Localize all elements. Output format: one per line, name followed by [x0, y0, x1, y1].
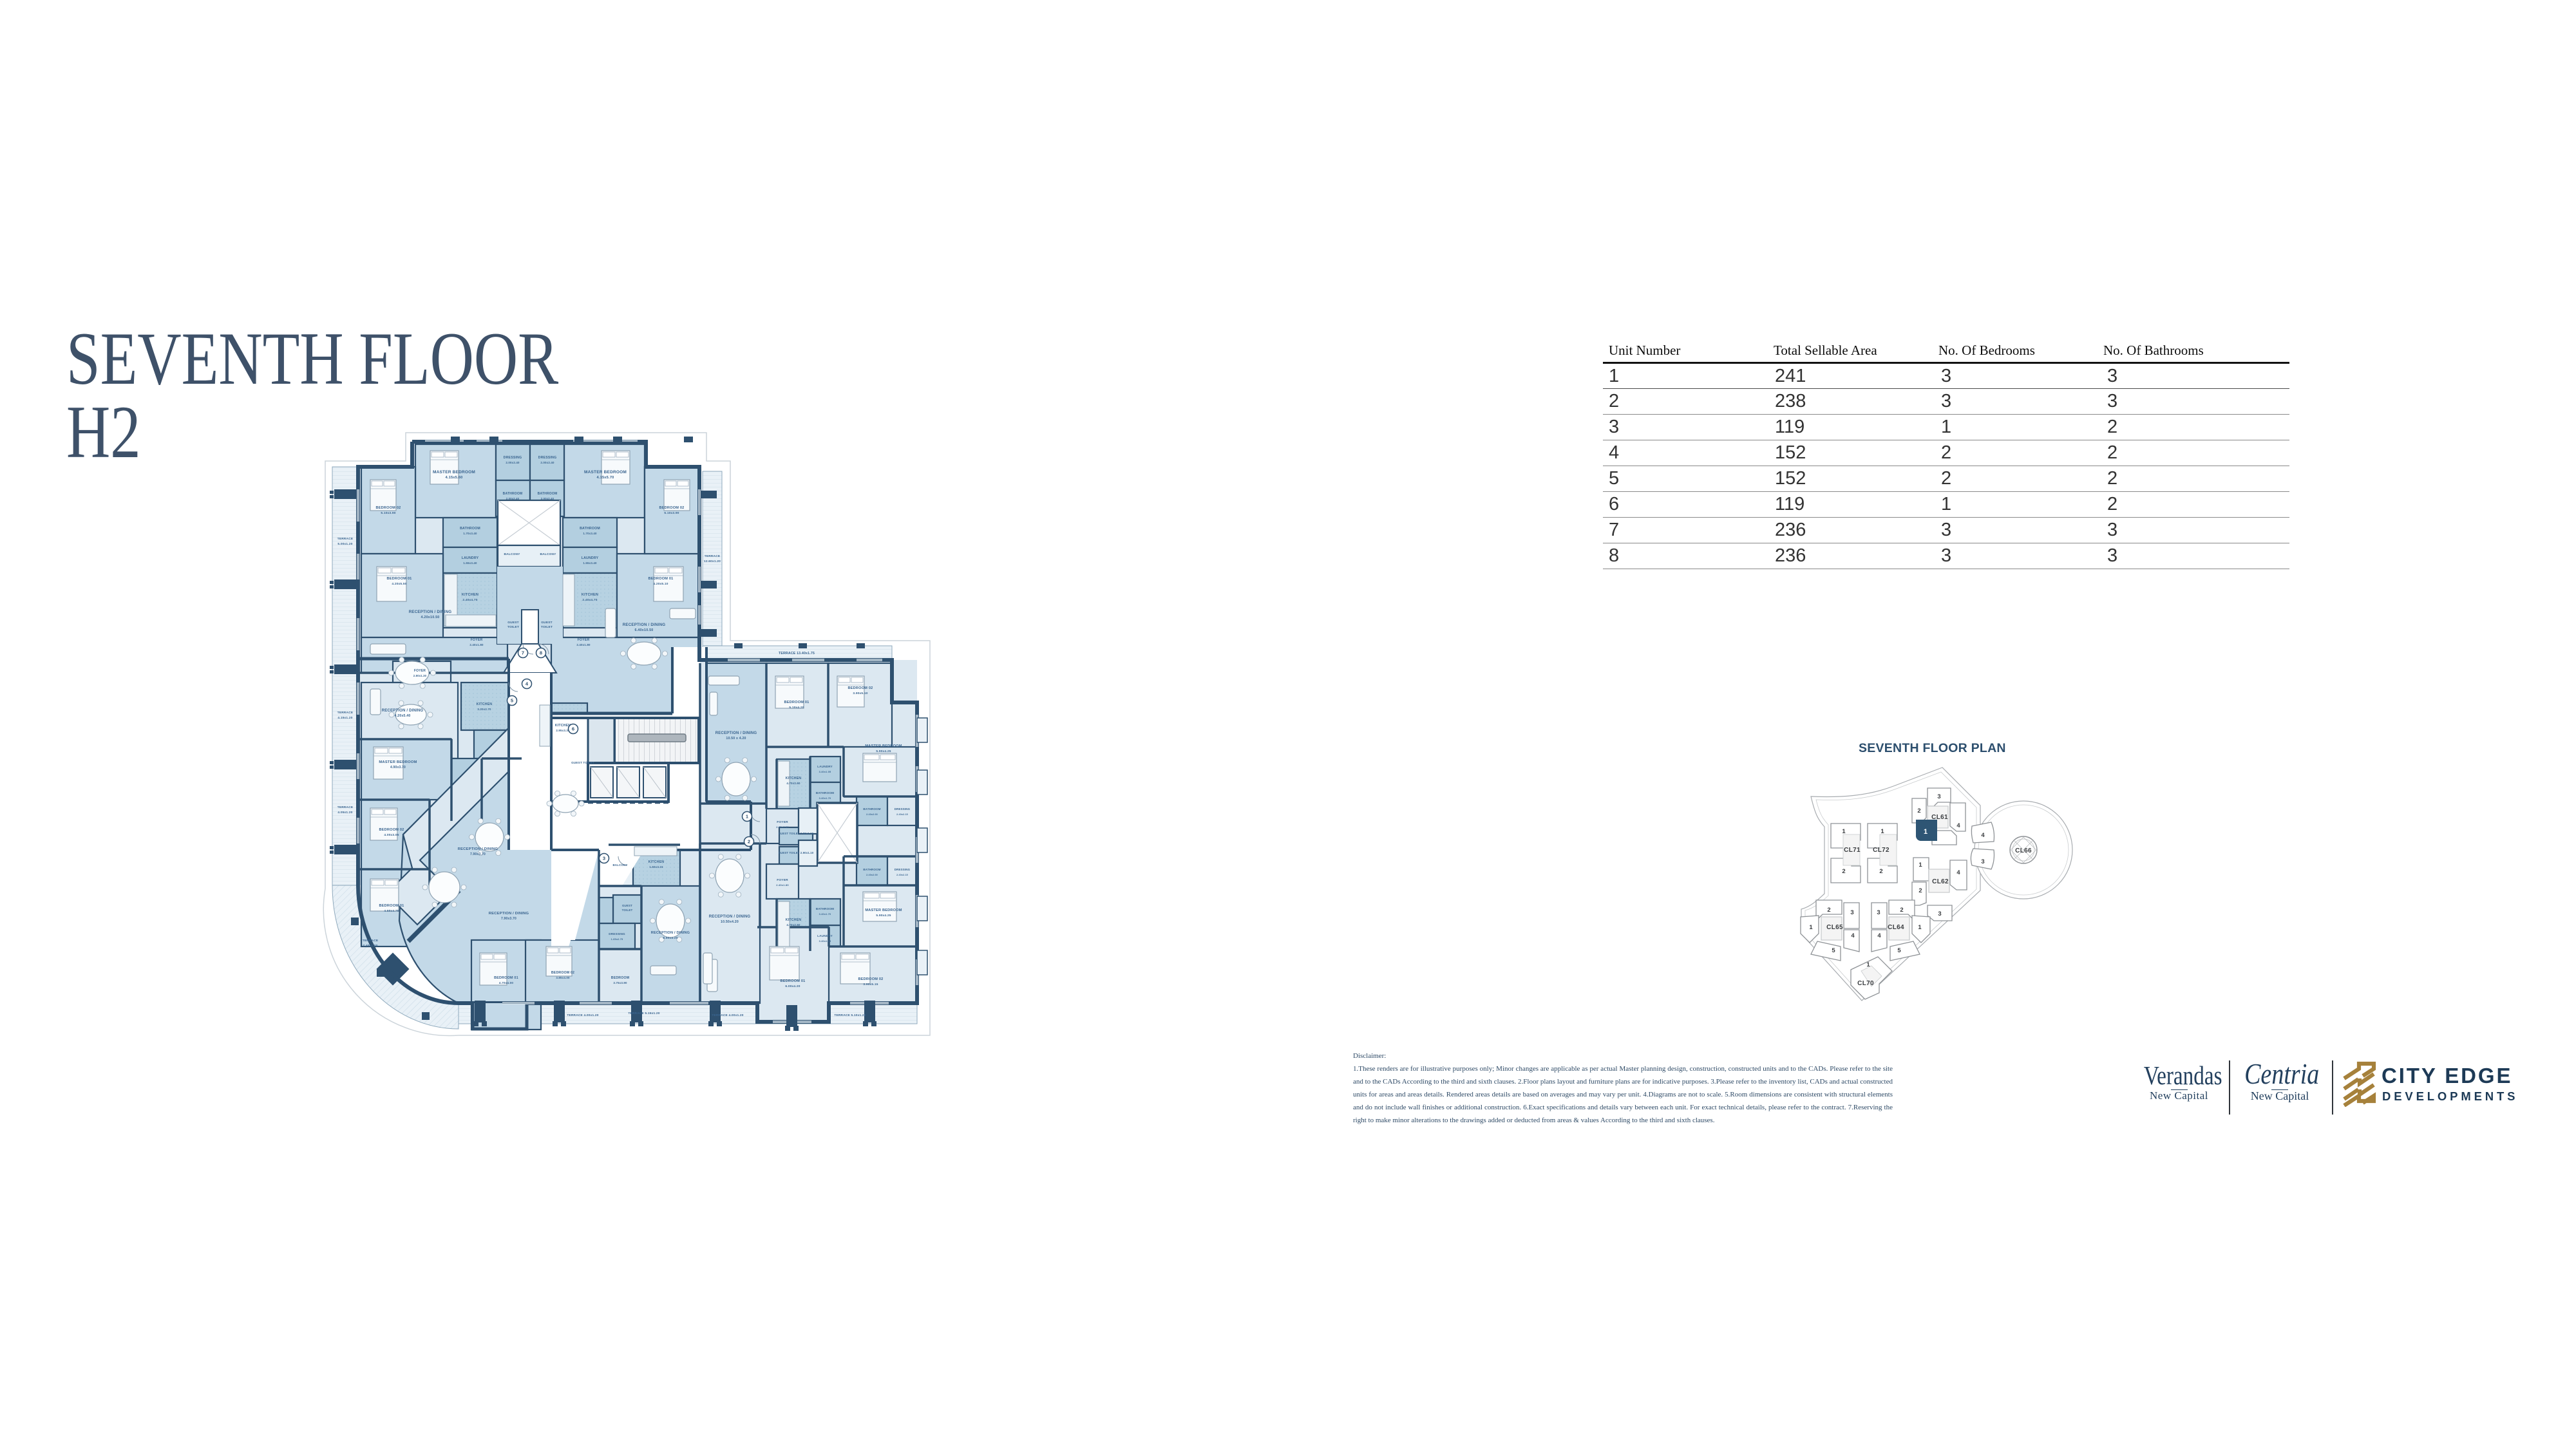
svg-text:3.75x3.90: 3.75x3.90: [613, 981, 627, 984]
svg-text:1.55x3.40: 1.55x3.40: [463, 561, 477, 565]
svg-text:BALCONY: BALCONY: [504, 552, 520, 556]
svg-text:CL66: CL66: [2015, 847, 2032, 854]
svg-text:3: 3: [1877, 909, 1880, 916]
svg-text:3: 3: [1938, 910, 1941, 918]
svg-text:BEDROOM: BEDROOM: [611, 976, 630, 980]
svg-text:LAUNDRY: LAUNDRY: [582, 556, 599, 560]
svg-text:2.40x2.15: 2.40x2.15: [896, 874, 908, 876]
svg-text:5: 5: [1832, 947, 1835, 954]
svg-text:DRESSING: DRESSING: [504, 456, 522, 460]
svg-text:2.00x2.40: 2.00x2.40: [506, 497, 520, 500]
svg-text:KITCHEN: KITCHEN: [786, 777, 802, 780]
svg-text:3.40x1.70: 3.40x1.70: [819, 797, 831, 800]
svg-text:4.70x2.60: 4.70x2.60: [786, 923, 800, 927]
svg-text:FOYER: FOYER: [471, 638, 483, 642]
svg-text:2.40x2.15: 2.40x2.15: [896, 813, 908, 816]
svg-text:DRESSING: DRESSING: [895, 868, 911, 871]
svg-text:FOYER: FOYER: [578, 638, 590, 642]
svg-text:1: 1: [1918, 924, 1922, 931]
svg-text:3: 3: [1981, 858, 1984, 865]
svg-text:KITCHEN: KITCHEN: [477, 702, 493, 706]
svg-text:BEDROOM 01: BEDROOM 01: [387, 577, 412, 581]
svg-text:2.40x4.70: 2.40x4.70: [462, 598, 477, 602]
svg-text:TERRACE 4.00x1.20: TERRACE 4.00x1.20: [567, 1013, 598, 1017]
svg-text:BATHROOM: BATHROOM: [460, 527, 480, 531]
svg-text:10.50x4.20: 10.50x4.20: [721, 920, 739, 924]
svg-text:CL61: CL61: [1931, 814, 1948, 821]
svg-text:5: 5: [1897, 947, 1901, 954]
svg-text:BEDROOM 02: BEDROOM 02: [376, 506, 401, 510]
svg-text:5.10x3.90: 5.10x3.90: [664, 511, 679, 515]
svg-text:2.40x1.80: 2.40x1.80: [776, 825, 789, 829]
svg-text:1.60x3.15: 1.60x3.15: [649, 865, 663, 869]
svg-text:3: 3: [1850, 909, 1853, 916]
svg-text:2.40x1.80: 2.40x1.80: [576, 643, 591, 646]
svg-text:1: 1: [1918, 862, 1922, 869]
svg-text:BEDROOM 02: BEDROOM 02: [659, 506, 685, 510]
svg-text:BEDROOM 01: BEDROOM 01: [784, 701, 810, 704]
svg-text:1: 1: [1880, 828, 1884, 835]
svg-text:1.65x2.75: 1.65x2.75: [611, 938, 623, 941]
svg-text:3.40x1.05: 3.40x1.05: [819, 771, 831, 773]
svg-text:BEDROOM 02: BEDROOM 02: [551, 971, 574, 975]
svg-text:RECEPTION / DINING: RECEPTION / DINING: [382, 709, 424, 713]
svg-text:TERRACE 13.40x1.75: TERRACE 13.40x1.75: [779, 652, 815, 655]
svg-text:2.00x2.40: 2.00x2.40: [540, 461, 554, 464]
svg-text:8: 8: [540, 650, 542, 656]
svg-text:CL70: CL70: [1857, 980, 1874, 987]
svg-text:KITCHEN: KITCHEN: [649, 860, 665, 864]
svg-text:6: 6: [572, 726, 574, 732]
svg-text:BATHROOM: BATHROOM: [863, 807, 880, 811]
svg-text:BALCONY: BALCONY: [612, 863, 627, 867]
svg-text:8.60x4.20: 8.60x4.20: [663, 936, 677, 940]
svg-text:6.00x4.20: 6.00x4.20: [785, 984, 800, 988]
svg-text:1: 1: [1809, 924, 1813, 931]
svg-text:BEDROOM 01: BEDROOM 01: [379, 904, 404, 908]
svg-text:BEDROOM 02: BEDROOM 02: [848, 686, 873, 690]
svg-text:2.40x2.00: 2.40x2.00: [866, 874, 878, 876]
svg-text:CL72: CL72: [1873, 847, 1889, 854]
svg-text:BATHROOM: BATHROOM: [863, 868, 880, 871]
svg-text:MASTER BEDROOM: MASTER BEDROOM: [865, 909, 902, 912]
svg-text:2: 2: [748, 839, 750, 845]
svg-text:MASTER BEDROOM: MASTER BEDROOM: [584, 470, 627, 475]
svg-text:RECEPTION / DINING: RECEPTION / DINING: [623, 623, 666, 627]
svg-text:2.00x2.40: 2.00x2.40: [541, 497, 554, 500]
svg-text:2: 2: [1879, 868, 1882, 875]
svg-text:7.90x3.70: 7.90x3.70: [470, 852, 486, 856]
svg-text:3: 3: [1937, 793, 1940, 800]
svg-text:LAUNDRY: LAUNDRY: [462, 556, 479, 560]
svg-text:RECEPTION / DINING: RECEPTION / DINING: [709, 915, 751, 919]
svg-text:CL64: CL64: [1888, 924, 1904, 931]
svg-text:2: 2: [1827, 907, 1830, 914]
svg-text:RECEPTION / DINING: RECEPTION / DINING: [715, 731, 757, 735]
svg-text:5.10x4.20: 5.10x4.20: [789, 706, 804, 710]
svg-text:LAUNDRY: LAUNDRY: [817, 934, 833, 937]
svg-text:2.40x2.00: 2.40x2.00: [866, 813, 878, 816]
svg-text:4.00x3.05: 4.00x3.05: [384, 833, 399, 837]
svg-text:5.10x3.90: 5.10x3.90: [381, 511, 395, 515]
svg-text:3.90x5.10: 3.90x5.10: [853, 692, 867, 695]
svg-text:BATHROOM: BATHROOM: [580, 527, 600, 531]
svg-text:4: 4: [526, 681, 529, 687]
svg-text:FOYER: FOYER: [777, 820, 788, 824]
svg-text:4.20x5.10: 4.20x5.10: [653, 582, 668, 586]
svg-text:4.20x5.50: 4.20x5.50: [392, 582, 406, 586]
svg-text:TERRACE 5.10x1.20: TERRACE 5.10x1.20: [834, 1013, 866, 1017]
svg-text:CL65: CL65: [1826, 924, 1843, 931]
svg-text:4.15x5.70: 4.15x5.70: [596, 476, 614, 480]
svg-text:3.85x4.00: 3.85x4.00: [556, 976, 570, 979]
svg-text:4.70x2.60: 4.70x2.60: [786, 782, 800, 785]
svg-text:CL62: CL62: [1932, 878, 1949, 885]
svg-text:1.70x3.40: 1.70x3.40: [463, 532, 477, 535]
svg-text:GUEST TOILET: GUEST TOILET: [571, 761, 594, 764]
svg-text:3.20x2.70: 3.20x2.70: [477, 708, 491, 711]
svg-text:DRESSING: DRESSING: [538, 456, 557, 460]
svg-text:3.40x1.70: 3.40x1.70: [819, 913, 831, 916]
svg-text:MASTER BEDROOM: MASTER BEDROOM: [865, 744, 902, 748]
svg-text:4.90x3.70: 4.90x3.70: [390, 766, 406, 769]
svg-text:2.40x1.80: 2.40x1.80: [776, 883, 789, 887]
svg-text:10.50 x 4.20: 10.50 x 4.20: [726, 737, 746, 740]
svg-text:2.40x4.70: 2.40x4.70: [582, 598, 597, 602]
svg-text:4.70x4.00: 4.70x4.00: [499, 981, 513, 984]
svg-text:2: 2: [1918, 887, 1922, 894]
svg-text:GUEST TOILET 2.90x1.10: GUEST TOILET 2.90x1.10: [779, 832, 814, 835]
svg-text:BATHROOM: BATHROOM: [816, 907, 834, 910]
svg-text:FOYER: FOYER: [414, 669, 426, 673]
svg-text:3.40x1.05: 3.40x1.05: [819, 940, 831, 943]
svg-text:GUEST TOILET 2.90x1.10: GUEST TOILET 2.90x1.10: [779, 851, 814, 854]
svg-text:2: 2: [1917, 807, 1920, 814]
svg-text:1: 1: [1924, 828, 1927, 836]
svg-text:DRESSING: DRESSING: [609, 932, 625, 936]
svg-text:2: 2: [1842, 868, 1845, 875]
svg-text:7.90x3.70: 7.90x3.70: [501, 917, 516, 921]
svg-text:LAUNDRY: LAUNDRY: [817, 765, 833, 768]
svg-text:1: 1: [1866, 961, 1870, 968]
svg-text:5.90x4.25: 5.90x4.25: [876, 749, 891, 753]
svg-text:CL71: CL71: [1844, 847, 1861, 854]
svg-text:BALCONY: BALCONY: [540, 552, 556, 556]
svg-text:2: 2: [1900, 907, 1903, 914]
svg-text:BEDROOM 01: BEDROOM 01: [781, 979, 806, 983]
svg-text:4: 4: [1956, 822, 1960, 829]
svg-text:BEDROOM 02: BEDROOM 02: [858, 977, 884, 981]
svg-text:TERRACE 4.00x1.20: TERRACE 4.00x1.20: [712, 1013, 743, 1017]
svg-text:BATHROOM: BATHROOM: [503, 492, 523, 496]
svg-text:4: 4: [1851, 932, 1855, 939]
svg-text:3: 3: [603, 856, 605, 862]
svg-text:BATHROOM: BATHROOM: [538, 492, 558, 496]
svg-text:3.90x5.15: 3.90x5.15: [863, 983, 878, 986]
svg-text:7: 7: [522, 650, 524, 656]
svg-text:KITCHEN: KITCHEN: [462, 593, 478, 597]
svg-text:BEDROOM 02: BEDROOM 02: [379, 828, 404, 832]
svg-text:RECEPTION / DINING: RECEPTION / DINING: [409, 610, 452, 614]
svg-text:RECEPTION / DINING: RECEPTION / DINING: [458, 847, 498, 851]
svg-text:4.20x5.40: 4.20x5.40: [395, 714, 411, 718]
svg-text:BATHROOM: BATHROOM: [816, 791, 834, 795]
svg-text:KITCHEN: KITCHEN: [582, 593, 598, 597]
svg-text:MASTER BEDROOM: MASTER BEDROOM: [433, 470, 475, 475]
svg-text:5: 5: [511, 698, 513, 704]
svg-text:6.40x10.50: 6.40x10.50: [635, 628, 654, 632]
svg-text:KITCHEN: KITCHEN: [786, 918, 802, 922]
svg-text:FOYER: FOYER: [777, 878, 788, 882]
svg-text:BEDROOM 01: BEDROOM 01: [649, 577, 674, 581]
svg-text:BEDROOM 01: BEDROOM 01: [494, 976, 518, 980]
svg-text:1.55x3.40: 1.55x3.40: [583, 561, 597, 565]
svg-text:2.95x3.30: 2.95x3.30: [556, 729, 570, 732]
svg-text:1: 1: [1842, 828, 1846, 835]
svg-text:4.15x5.60: 4.15x5.60: [445, 476, 462, 480]
svg-text:4.20x10.50: 4.20x10.50: [421, 616, 440, 619]
svg-text:1.70x3.40: 1.70x3.40: [583, 532, 597, 535]
svg-text:5.90x4.25: 5.90x4.25: [876, 914, 891, 918]
svg-text:TERRACE 5.15x1.20: TERRACE 5.15x1.20: [628, 1012, 659, 1015]
svg-text:4.50x4.75: 4.50x4.75: [384, 909, 399, 913]
svg-text:MASTER BEDROOM: MASTER BEDROOM: [379, 760, 417, 764]
svg-text:2.40x1.80: 2.40x1.80: [469, 643, 484, 646]
svg-text:4: 4: [1981, 832, 1985, 839]
svg-text:2.80x1.30: 2.80x1.30: [413, 674, 427, 677]
svg-text:DRESSING: DRESSING: [895, 807, 911, 811]
svg-text:4: 4: [1956, 869, 1960, 876]
svg-text:1: 1: [746, 814, 748, 820]
svg-text:RECEPTION / DINING: RECEPTION / DINING: [651, 931, 690, 935]
svg-text:2.00x2.40: 2.00x2.40: [506, 461, 520, 464]
svg-text:RECEPTION / DINING: RECEPTION / DINING: [489, 912, 529, 916]
svg-text:4: 4: [1877, 932, 1881, 939]
